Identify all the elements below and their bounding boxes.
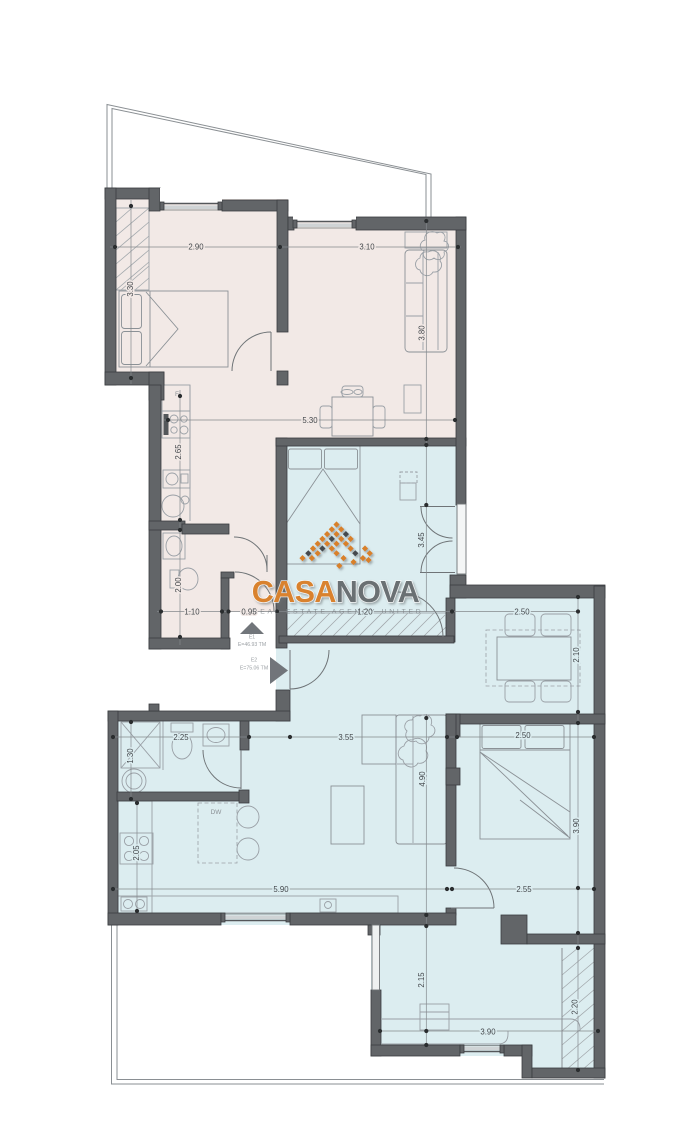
svg-text:E=75.06 TM: E=75.06 TM <box>240 666 268 672</box>
svg-text:REAL ESTATE AGENCY UNITED: REAL ESTATE AGENCY UNITED <box>253 609 424 616</box>
svg-text:2.15: 2.15 <box>417 972 426 988</box>
svg-text:2.10: 2.10 <box>572 647 581 663</box>
svg-text:3.55: 3.55 <box>338 733 354 742</box>
svg-text:2.50: 2.50 <box>514 608 530 617</box>
svg-text:2.20: 2.20 <box>571 999 580 1015</box>
svg-text:2.55: 2.55 <box>516 885 532 894</box>
svg-text:E=46.93 TM: E=46.93 TM <box>238 642 266 648</box>
svg-text:3.30: 3.30 <box>126 281 135 297</box>
svg-text:3.90: 3.90 <box>480 1028 496 1037</box>
svg-text:DW: DW <box>211 809 223 816</box>
svg-text:3.90: 3.90 <box>572 818 581 834</box>
svg-text:2.05: 2.05 <box>132 845 141 861</box>
svg-text:3.10: 3.10 <box>359 243 375 252</box>
svg-text:CASANOVA: CASANOVA <box>252 575 420 609</box>
svg-text:E2: E2 <box>251 658 257 664</box>
svg-text:5.90: 5.90 <box>273 885 289 894</box>
svg-text:4.90: 4.90 <box>418 771 427 787</box>
svg-text:3.80: 3.80 <box>418 325 427 341</box>
svg-text:2.90: 2.90 <box>188 243 204 252</box>
svg-text:2.50: 2.50 <box>515 731 531 740</box>
svg-text:2.25: 2.25 <box>173 733 189 742</box>
svg-text:E1: E1 <box>249 635 255 641</box>
svg-text:1.30: 1.30 <box>126 748 135 764</box>
svg-text:5.30: 5.30 <box>302 416 318 425</box>
svg-text:2.65: 2.65 <box>174 444 183 460</box>
svg-text:3.45: 3.45 <box>417 532 426 548</box>
svg-text:2.00: 2.00 <box>174 577 183 593</box>
svg-text:1.10: 1.10 <box>184 608 200 617</box>
